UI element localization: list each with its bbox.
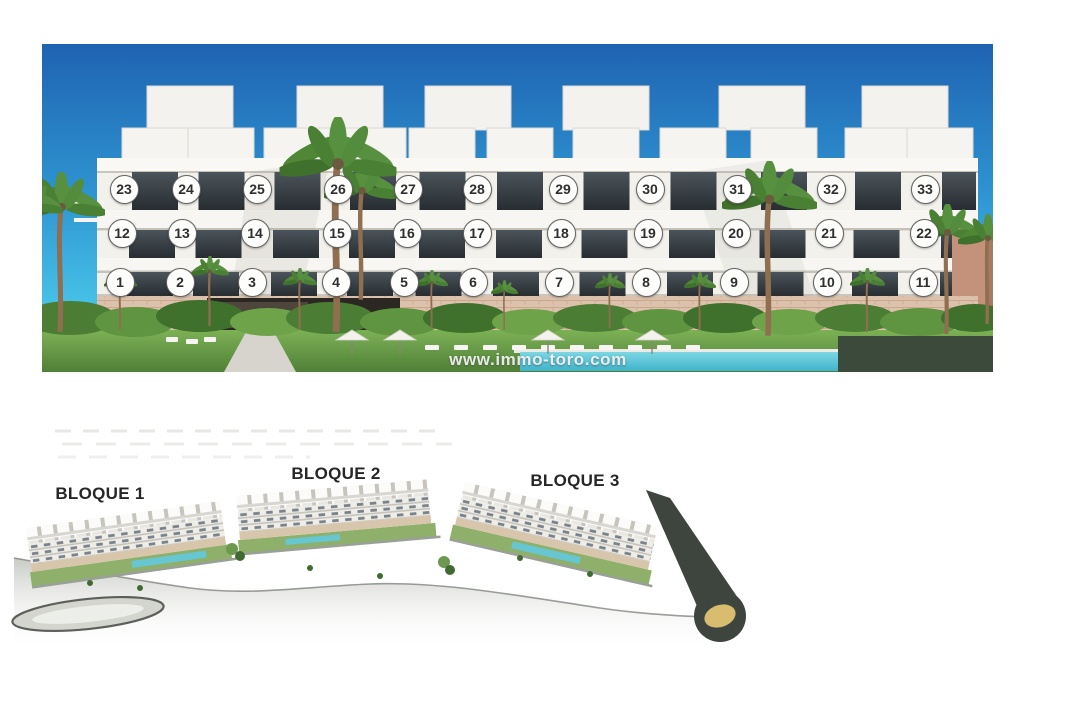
unit-marker-32: 32: [817, 175, 846, 204]
unit-marker-15: 15: [323, 219, 352, 248]
unit-marker-16: 16: [393, 219, 422, 248]
unit-marker-11: 11: [909, 268, 938, 297]
unit-marker-27: 27: [394, 175, 423, 204]
block-label-1: BLOQUE 1: [55, 484, 144, 504]
unit-marker-7: 7: [545, 268, 574, 297]
unit-marker-1: 1: [106, 268, 135, 297]
unit-marker-20: 20: [722, 219, 751, 248]
unit-marker-25: 25: [243, 175, 272, 204]
unit-marker-28: 28: [463, 175, 492, 204]
ghost-roofline: [55, 431, 452, 457]
unit-marker-17: 17: [463, 219, 492, 248]
block-label-3: BLOQUE 3: [530, 471, 619, 491]
building-elevation-render: 1234567891011121314151617181920212223242…: [42, 44, 993, 372]
unit-marker-24: 24: [172, 175, 201, 204]
unit-marker-30: 30: [636, 175, 665, 204]
unit-marker-4: 4: [322, 268, 351, 297]
unit-marker-5: 5: [390, 268, 419, 297]
unit-marker-9: 9: [720, 268, 749, 297]
unit-marker-31: 31: [723, 175, 752, 204]
unit-marker-6: 6: [459, 268, 488, 297]
block-label-2: BLOQUE 2: [291, 464, 380, 484]
unit-marker-3: 3: [238, 268, 267, 297]
listing-image-page: 1234567891011121314151617181920212223242…: [0, 0, 1080, 720]
unit-marker-12: 12: [108, 219, 137, 248]
block-2-building: [234, 479, 440, 556]
unit-marker-19: 19: [634, 219, 663, 248]
unit-number-layer: 1234567891011121314151617181920212223242…: [42, 44, 993, 372]
site-plan-scene: [0, 415, 790, 675]
unit-marker-13: 13: [168, 219, 197, 248]
unit-marker-10: 10: [813, 268, 842, 297]
unit-marker-8: 8: [632, 268, 661, 297]
site-plan-render: BLOQUE 1BLOQUE 2BLOQUE 3: [0, 415, 790, 675]
block-1-building: [24, 500, 236, 589]
unit-marker-26: 26: [324, 175, 353, 204]
block-3-building: [449, 482, 665, 588]
unit-marker-18: 18: [547, 219, 576, 248]
unit-marker-29: 29: [549, 175, 578, 204]
unit-marker-33: 33: [911, 175, 940, 204]
unit-marker-23: 23: [110, 175, 139, 204]
unit-marker-14: 14: [241, 219, 270, 248]
watermark: www.immo-toro.com: [449, 350, 627, 370]
unit-marker-2: 2: [166, 268, 195, 297]
unit-marker-21: 21: [815, 219, 844, 248]
unit-marker-22: 22: [910, 219, 939, 248]
